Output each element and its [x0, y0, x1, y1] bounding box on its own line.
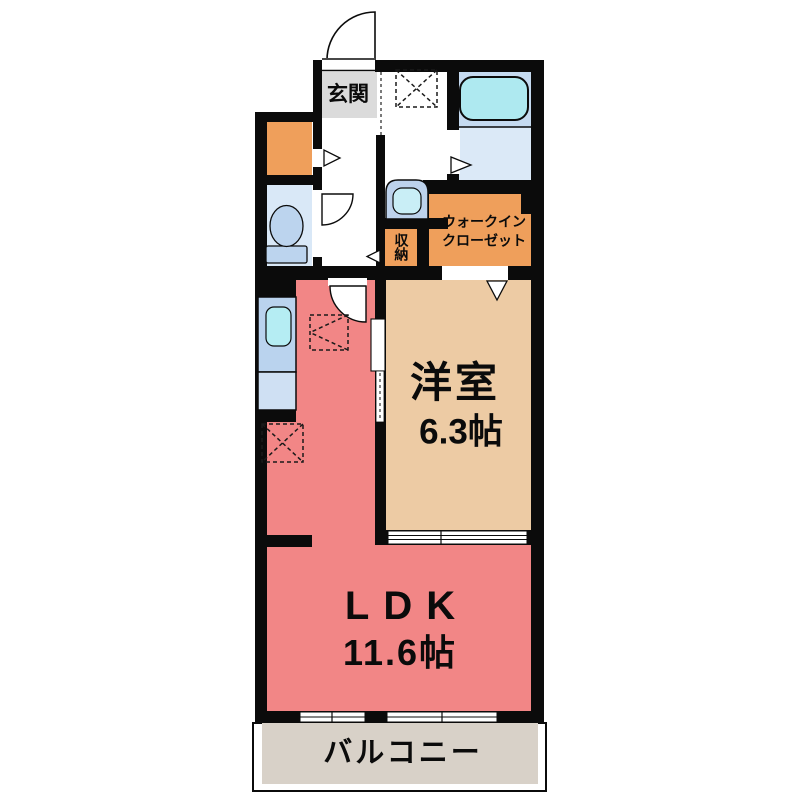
walk-in-closet-label-line1: ウォークイン: [442, 215, 526, 230]
hallway-door-marker: [367, 250, 380, 263]
storage-box-doorway: [312, 149, 324, 167]
walk-in-closet-room: [429, 194, 531, 266]
kitchen-counter-icon: [258, 297, 296, 410]
western-room-size: 6.3帖: [419, 415, 503, 452]
closet-doorway: [442, 266, 508, 280]
western-ldk-sliding-door: [388, 531, 527, 544]
storage-label: 収納: [394, 233, 409, 261]
windows: [300, 712, 497, 722]
floor-plan-drawing: [0, 0, 800, 800]
washing-machine-area-icon: [396, 70, 437, 107]
walk-in-closet-label-line2: クローゼット: [442, 234, 526, 249]
balcony-label: バルコニー: [323, 738, 482, 768]
bath-floor-zone: [459, 127, 531, 180]
ldk-window-left: [300, 712, 365, 722]
ldk-room-lower: [267, 545, 531, 711]
storage-box-door-marker: [324, 150, 340, 166]
genkan-label: 玄関: [327, 84, 369, 106]
washbasin-icon: [386, 180, 428, 219]
toilet-door-swing: [322, 194, 353, 225]
sliding-door-panel: [371, 319, 385, 371]
ldk-window-right: [387, 712, 497, 722]
kitchen-sink-icon: [266, 307, 291, 346]
bathtub-icon: [460, 77, 528, 120]
entrance-door-swing: [327, 12, 375, 60]
ldk-size: 11.6帖: [343, 634, 457, 672]
ldk-doorway: [328, 278, 367, 286]
ldk-label: LDK: [345, 585, 469, 627]
sliding-door-pocket: [376, 371, 384, 422]
western-room-label: 洋室: [410, 361, 500, 405]
floor-plan: 玄関 収納 ウォークイン クローゼット 洋室 6.3帖 LDK 11.6帖 バル…: [0, 0, 800, 800]
